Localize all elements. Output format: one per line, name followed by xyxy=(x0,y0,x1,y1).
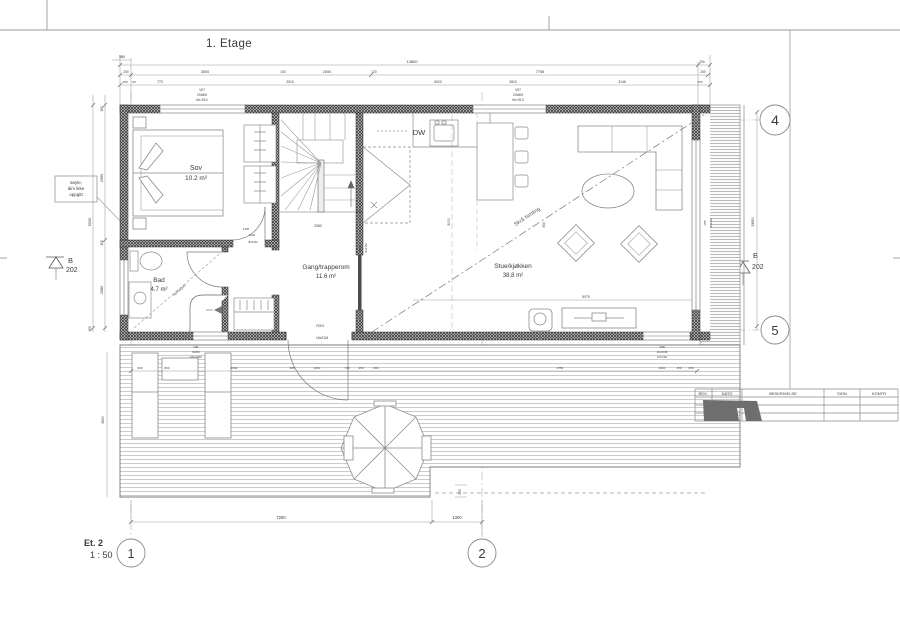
kitchen-island xyxy=(477,123,513,200)
svg-text:600: 600 xyxy=(373,366,378,370)
svg-text:100: 100 xyxy=(280,70,286,74)
dims-top: 380 13800 250 250 3500 100 2000 120 7756… xyxy=(119,55,706,84)
svg-text:100: 100 xyxy=(100,240,104,246)
section-number: 202 xyxy=(752,264,764,271)
svg-text:V08: V08 xyxy=(659,345,665,349)
svg-text:3500: 3500 xyxy=(201,70,209,74)
svg-text:oppgitt: oppgitt xyxy=(69,192,83,197)
svg-text:søyle,: søyle, xyxy=(70,180,82,185)
svg-text:ID03: ID03 xyxy=(358,245,362,252)
page-title: 1. Etage xyxy=(206,38,252,50)
room-bath-name: Bad xyxy=(153,277,165,284)
svg-text:bh=110: bh=110 xyxy=(657,355,667,359)
svg-text:3650: 3650 xyxy=(101,416,105,424)
toilet-tank xyxy=(130,251,138,271)
section-number: 202 xyxy=(66,267,78,274)
svg-text:250: 250 xyxy=(688,366,693,370)
dato-col: DATO xyxy=(722,391,733,396)
svg-text:150: 150 xyxy=(88,326,92,332)
tv-bench xyxy=(562,308,636,328)
svg-text:20x6M: 20x6M xyxy=(197,93,207,97)
coffee-table xyxy=(582,174,634,208)
scale-value: 1 : 50 xyxy=(90,550,113,560)
svg-text:8x21M: 8x21M xyxy=(709,218,713,228)
svg-text:3146: 3146 xyxy=(618,80,626,84)
sink xyxy=(430,120,458,146)
window-bottom-living xyxy=(643,332,690,340)
grid-label-1: 1 xyxy=(127,546,134,561)
svg-text:900: 900 xyxy=(542,222,546,228)
scale-label: Et. 2 xyxy=(84,538,103,548)
svg-text:6020: 6020 xyxy=(434,80,442,84)
room-hall-name: Gang/trapperom xyxy=(302,264,349,271)
svg-text:150: 150 xyxy=(676,366,681,370)
svg-text:7250: 7250 xyxy=(276,515,286,520)
svg-text:250: 250 xyxy=(123,70,129,74)
svg-text:8x6M: 8x6M xyxy=(192,350,200,354)
room-bedroom-name: Sov xyxy=(190,165,203,172)
svg-text:395: 395 xyxy=(289,366,294,370)
sliding-door-living xyxy=(358,255,362,310)
svg-text:V01: V01 xyxy=(193,345,199,349)
svg-text:250: 250 xyxy=(122,80,127,84)
grid-label-5: 5 xyxy=(771,323,778,338)
svg-text:5850: 5850 xyxy=(750,217,755,227)
svg-text:3750: 3750 xyxy=(557,366,564,370)
svg-text:600: 600 xyxy=(137,366,142,370)
svg-text:250: 250 xyxy=(358,366,363,370)
basin xyxy=(134,292,146,304)
svg-text:740: 740 xyxy=(344,366,349,370)
svg-text:2810: 2810 xyxy=(509,80,517,84)
window-top-kitchen xyxy=(473,105,546,113)
svg-text:200: 200 xyxy=(697,80,702,84)
svg-text:20x6M: 20x6M xyxy=(513,93,523,97)
svg-text:250: 250 xyxy=(700,70,706,74)
svg-text:250: 250 xyxy=(458,489,462,495)
section-marker-left: B 202 xyxy=(46,256,78,280)
svg-text:bh=1200: bh=1200 xyxy=(190,355,202,359)
window-bottom-bath xyxy=(193,332,228,340)
room-bath-area: 4.7 m² xyxy=(150,287,167,293)
svg-text:2080: 2080 xyxy=(314,224,322,228)
svg-text:2010: 2010 xyxy=(286,80,294,84)
rev-col: REV. xyxy=(699,391,708,396)
svg-text:800: 800 xyxy=(164,366,169,370)
room-living-area: 38.8 m² xyxy=(503,273,523,279)
svg-text:120: 120 xyxy=(371,70,377,74)
grid-label-2: 2 xyxy=(478,546,485,561)
svg-text:2080: 2080 xyxy=(100,286,104,294)
svg-text:13800: 13800 xyxy=(406,59,418,64)
svg-text:380: 380 xyxy=(119,55,125,59)
svg-text:bh=913: bh=913 xyxy=(512,98,523,102)
drawing-sheet: 1. Etage Et. 2 1 : 50 1 2 4 5 B 202 B 20… xyxy=(0,0,900,636)
svg-text:bh=910: bh=910 xyxy=(196,98,207,102)
svg-text:YD01: YD01 xyxy=(316,324,325,328)
svg-text:ID01: ID01 xyxy=(249,233,256,237)
svg-text:3000: 3000 xyxy=(447,218,451,226)
bar-stools xyxy=(515,127,528,187)
room-hall-area: 11.6 m² xyxy=(316,274,336,280)
svg-text:V07: V07 xyxy=(199,88,205,92)
svg-text:dim ikke: dim ikke xyxy=(68,186,85,191)
room-living-name: Stue/kjøkken xyxy=(494,263,532,270)
svg-text:10x21M: 10x21M xyxy=(657,350,668,354)
floor-plan-svg: 1. Etage Et. 2 1 : 50 1 2 4 5 B 202 B 20… xyxy=(0,0,900,636)
svg-text:1010: 1010 xyxy=(659,366,666,370)
svg-text:V05: V05 xyxy=(703,220,707,226)
svg-text:V07: V07 xyxy=(515,88,521,92)
room-bedroom-area: 10.2 m² xyxy=(185,175,208,182)
stamp-blob xyxy=(703,400,762,421)
svg-text:7756: 7756 xyxy=(536,70,544,74)
sign-col: SIGN xyxy=(837,391,847,396)
svg-text:5075: 5075 xyxy=(582,295,590,299)
window-right-tall xyxy=(692,140,700,310)
svg-text:50: 50 xyxy=(132,80,136,84)
svg-text:770: 770 xyxy=(157,80,163,84)
window-tags-top: V07 20x6M bh=910 V07 20x6M bh=913 xyxy=(196,88,523,102)
section-letter: B xyxy=(68,256,73,265)
beskrivelse-col: BESKRIVELSE xyxy=(769,391,797,396)
window-bath xyxy=(120,260,128,315)
revision-table: REV. DATO BESKRIVELSE SIGN KONTR xyxy=(695,389,898,421)
window-top-bedroom xyxy=(160,105,245,113)
svg-text:2040: 2040 xyxy=(231,366,238,370)
bed xyxy=(133,117,223,229)
grid-label-4: 4 xyxy=(771,112,779,128)
dims-left: 100 2950 100 2080 5000 150 xyxy=(88,106,104,332)
svg-text:250: 250 xyxy=(699,60,705,64)
svg-text:1100: 1100 xyxy=(243,227,250,231)
svg-text:2000: 2000 xyxy=(323,70,331,74)
svg-text:8x21M: 8x21M xyxy=(364,243,368,253)
entry-wardrobe xyxy=(234,298,274,330)
svg-text:16x21M: 16x21M xyxy=(316,336,328,340)
svg-text:2950: 2950 xyxy=(100,174,104,182)
svg-text:8x21M: 8x21M xyxy=(248,240,258,244)
svg-text:1300: 1300 xyxy=(452,515,462,520)
svg-text:5000: 5000 xyxy=(88,218,92,226)
svg-text:100: 100 xyxy=(100,106,104,112)
dishwasher-label: DW xyxy=(413,128,426,137)
kontr-col: KONTR xyxy=(872,391,886,396)
svg-text:1010: 1010 xyxy=(314,366,321,370)
toilet-bowl xyxy=(140,252,162,270)
